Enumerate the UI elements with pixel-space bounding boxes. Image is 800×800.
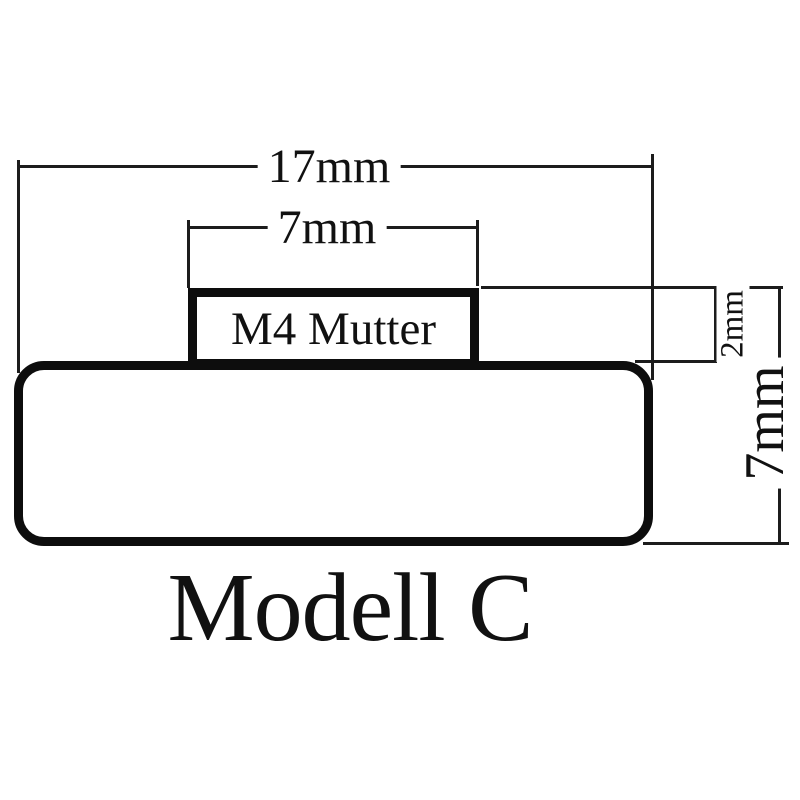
- drawing-title: Modell C: [168, 559, 533, 657]
- dim-label-nut-height: 2mm: [717, 286, 750, 362]
- ext-line-nut-width-right: [476, 220, 479, 286]
- ext-line-nut-width-left: [187, 220, 190, 288]
- technical-drawing-canvas: M4 Mutter 17mm 7mm 2mm 7mm Modell C: [0, 0, 800, 800]
- dim-label-nut-width: 7mm: [268, 204, 387, 252]
- dim-label-total-height: 7mm: [737, 357, 793, 488]
- nut-body-outline: M4 Mutter: [188, 288, 479, 368]
- ext-line-total-width-left: [17, 160, 20, 373]
- nut-label: M4 Mutter: [231, 304, 436, 353]
- plate-body-outline: [14, 361, 653, 546]
- ext-line-nut-height-bottom: [635, 360, 717, 363]
- ext-line-total-width-right: [651, 154, 654, 380]
- dim-label-total-width: 17mm: [258, 143, 401, 191]
- ext-line-plate-bottom-right: [643, 542, 789, 545]
